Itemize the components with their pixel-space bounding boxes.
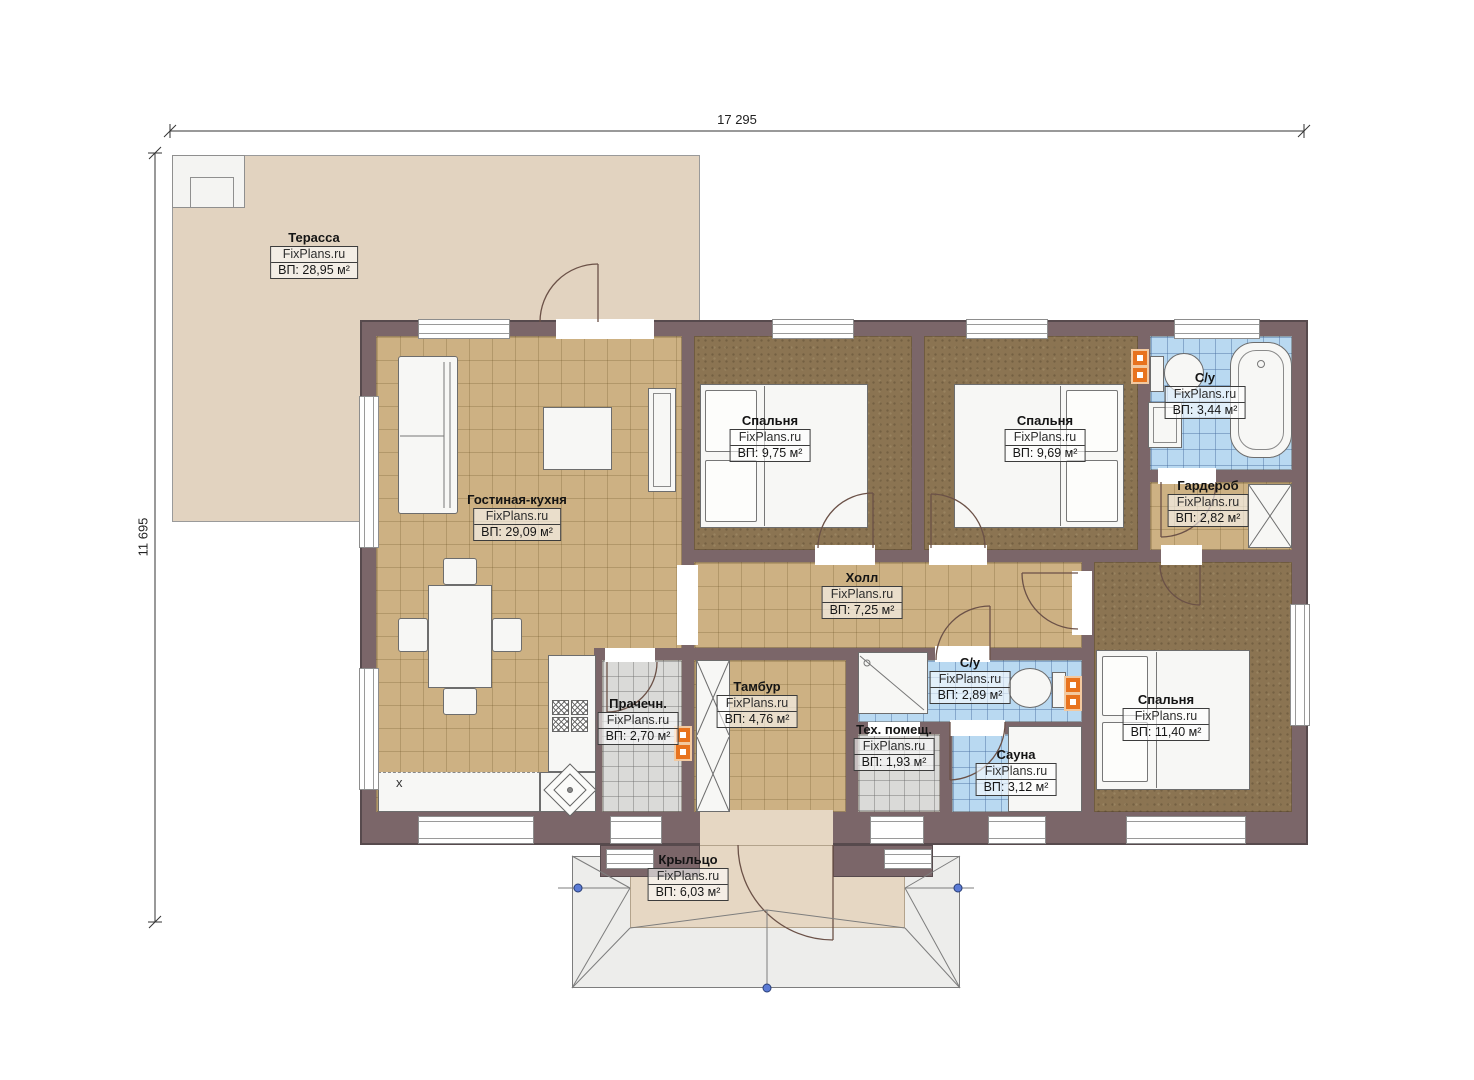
watermark: FixPlans.ru	[823, 587, 902, 603]
room-area: ВП: 9,69 м²	[1006, 446, 1085, 461]
room-area: ВП: 7,25 м²	[823, 603, 902, 618]
window-living-left-lower	[359, 668, 379, 790]
room-label-box: FixPlans.ru ВП: 7,25 м²	[822, 586, 903, 619]
room-label-bedroom1: Спальня FixPlans.ru ВП: 9,75 м²	[730, 413, 811, 462]
dining-chair-top	[443, 558, 477, 585]
room-name: Тех. помещ.	[854, 722, 935, 737]
window-bedroom2-top	[966, 319, 1048, 339]
watermark: FixPlans.ru	[649, 869, 728, 885]
side-cabinet-inner	[653, 393, 671, 487]
window-kitchen-bottom	[418, 816, 534, 844]
room-label-box: FixPlans.ru ВП: 3,44 м²	[1165, 386, 1246, 419]
room-label-box: FixPlans.ru ВП: 2,82 м²	[1168, 494, 1249, 527]
dining-chair-right	[492, 618, 522, 652]
room-name: Гардероб	[1168, 478, 1249, 493]
toilet-bowl	[1008, 668, 1052, 708]
room-area: ВП: 9,75 м²	[731, 446, 810, 461]
window-bathroom1-top	[1174, 319, 1260, 339]
room-label-box: FixPlans.ru ВП: 3,12 м²	[976, 763, 1057, 796]
radiator-cell	[1133, 368, 1147, 382]
room-area: ВП: 3,44 м²	[1166, 403, 1245, 418]
room-area: ВП: 1,93 м²	[855, 755, 934, 770]
shower-tray	[858, 652, 928, 714]
room-area: ВП: 6,03 м²	[649, 885, 728, 900]
door-opening-wardrobe	[1161, 545, 1202, 565]
room-label-box: FixPlans.ru ВП: 2,89 м²	[930, 671, 1011, 704]
sofa	[398, 356, 458, 514]
window-bedroom1-top	[772, 319, 854, 339]
window-bedroom3-bottom	[1126, 816, 1246, 844]
room-name: С/у	[1165, 370, 1246, 385]
radiator-cell	[1133, 351, 1147, 365]
room-label-bathroom1: С/у FixPlans.ru ВП: 3,44 м²	[1165, 370, 1246, 419]
stove-burner	[571, 700, 588, 715]
door-opening-bedroom3	[1072, 571, 1092, 635]
room-label-box: FixPlans.ru ВП: 28,95 м²	[270, 246, 358, 279]
window-sauna-bottom	[988, 816, 1046, 844]
window-living-left-upper	[359, 396, 379, 548]
door-opening-laundry	[605, 648, 655, 662]
room-name: Тамбур	[717, 679, 798, 694]
coffee-table	[543, 407, 612, 470]
window-bedroom3-right	[1290, 604, 1310, 726]
room-name: Прачечн.	[598, 696, 679, 711]
stove-burner	[552, 717, 569, 732]
room-name: Гостиная-кухня	[467, 492, 567, 507]
door-opening-entrance	[700, 810, 833, 845]
door-opening-bedroom1	[815, 545, 875, 565]
radiator-cell	[676, 745, 690, 759]
room-name: Терасса	[270, 230, 358, 245]
room-label-porch: Крыльцо FixPlans.ru ВП: 6,03 м²	[648, 852, 729, 901]
radiator	[1131, 349, 1149, 384]
room-label-wardrobe: Гардероб FixPlans.ru ВП: 2,82 м²	[1168, 478, 1249, 527]
radiator-cell	[1066, 695, 1080, 709]
watermark: FixPlans.ru	[1169, 495, 1248, 511]
watermark: FixPlans.ru	[1166, 387, 1245, 403]
radiator	[1064, 676, 1082, 711]
window-tech-bottom	[870, 816, 924, 844]
room-label-hall: Холл FixPlans.ru ВП: 7,25 м²	[822, 570, 903, 619]
room-label-bedroom3: Спальня FixPlans.ru ВП: 11,40 м²	[1123, 692, 1210, 741]
room-label-box: FixPlans.ru ВП: 9,75 м²	[730, 429, 811, 462]
room-area: ВП: 11,40 м²	[1124, 725, 1209, 740]
room-area: ВП: 29,09 м²	[474, 525, 560, 540]
room-label-living: Гостиная-кухня FixPlans.ru ВП: 29,09 м²	[467, 492, 567, 541]
door-opening-bedroom2	[929, 545, 987, 565]
toilet-tank	[1150, 356, 1164, 392]
room-name: Спальня	[730, 413, 811, 428]
stove-burner	[552, 700, 569, 715]
room-area: ВП: 3,12 м²	[977, 780, 1056, 795]
watermark: FixPlans.ru	[931, 672, 1010, 688]
side-cabinet	[648, 388, 676, 492]
room-label-box: FixPlans.ru ВП: 29,09 м²	[473, 508, 561, 541]
room-area: ВП: 4,76 м²	[718, 712, 797, 727]
room-label-bathroom2: С/у FixPlans.ru ВП: 2,89 м²	[930, 655, 1011, 704]
window-living-top	[418, 319, 510, 339]
room-name: Спальня	[1005, 413, 1086, 428]
dimension-width-label: 17 295	[717, 112, 757, 127]
bed-pillow	[705, 460, 757, 522]
watermark: FixPlans.ru	[271, 247, 357, 263]
watermark: FixPlans.ru	[718, 696, 797, 712]
window-laundry-bottom	[610, 816, 662, 844]
door-opening-terrace	[556, 319, 654, 339]
room-label-tambour: Тамбур FixPlans.ru ВП: 4,76 м²	[717, 679, 798, 728]
room-label-box: FixPlans.ru ВП: 11,40 м²	[1123, 708, 1210, 741]
dining-chair-bottom	[443, 688, 477, 715]
room-label-box: FixPlans.ru ВП: 2,70 м²	[598, 712, 679, 745]
porch-sidelight-window-right	[884, 849, 932, 869]
radiator-cell	[1066, 678, 1080, 692]
passage-living-hall	[677, 565, 698, 645]
room-name: С/у	[930, 655, 1011, 670]
room-area: ВП: 28,95 м²	[271, 263, 357, 278]
room-area: ВП: 2,82 м²	[1169, 511, 1248, 526]
room-area: ВП: 2,89 м²	[931, 688, 1010, 703]
room-label-box: FixPlans.ru ВП: 9,69 м²	[1005, 429, 1086, 462]
room-name: Сауна	[976, 747, 1057, 762]
watermark: FixPlans.ru	[1124, 709, 1209, 725]
room-label-sauna: Сауна FixPlans.ru ВП: 3,12 м²	[976, 747, 1057, 796]
bathtub-drain	[1257, 360, 1265, 368]
dimension-height-label: 11 695	[136, 518, 151, 557]
room-label-terrace: Терасса FixPlans.ru ВП: 28,95 м²	[270, 230, 358, 279]
room-area: ВП: 2,70 м²	[599, 729, 678, 744]
room-label-bedroom2: Спальня FixPlans.ru ВП: 9,69 м²	[1005, 413, 1086, 462]
room-label-box: FixPlans.ru ВП: 4,76 м²	[717, 695, 798, 728]
room-name: Холл	[822, 570, 903, 585]
stove-burner	[571, 717, 588, 732]
bed-pillow	[1066, 460, 1118, 522]
kitchen-x-mark: x	[396, 775, 403, 790]
watermark: FixPlans.ru	[1006, 430, 1085, 446]
kitchen-counter-corner	[540, 772, 596, 812]
room-name: Спальня	[1123, 692, 1210, 707]
room-label-box: FixPlans.ru ВП: 1,93 м²	[854, 738, 935, 771]
wardrobe-unit	[1248, 484, 1292, 548]
watermark: FixPlans.ru	[599, 713, 678, 729]
watermark: FixPlans.ru	[855, 739, 934, 755]
floor-plan-canvas: x	[0, 0, 1474, 1080]
terrace-steps-inner	[190, 177, 234, 208]
dining-table	[428, 585, 492, 688]
room-label-laundry: Прачечн. FixPlans.ru ВП: 2,70 м²	[598, 696, 679, 745]
room-label-tech: Тех. помещ. FixPlans.ru ВП: 1,93 м²	[854, 722, 935, 771]
room-label-box: FixPlans.ru ВП: 6,03 м²	[648, 868, 729, 901]
dining-chair-left	[398, 618, 428, 652]
room-name: Крыльцо	[648, 852, 729, 867]
door-opening-sauna	[950, 720, 1005, 736]
watermark: FixPlans.ru	[731, 430, 810, 446]
watermark: FixPlans.ru	[977, 764, 1056, 780]
watermark: FixPlans.ru	[474, 509, 560, 525]
